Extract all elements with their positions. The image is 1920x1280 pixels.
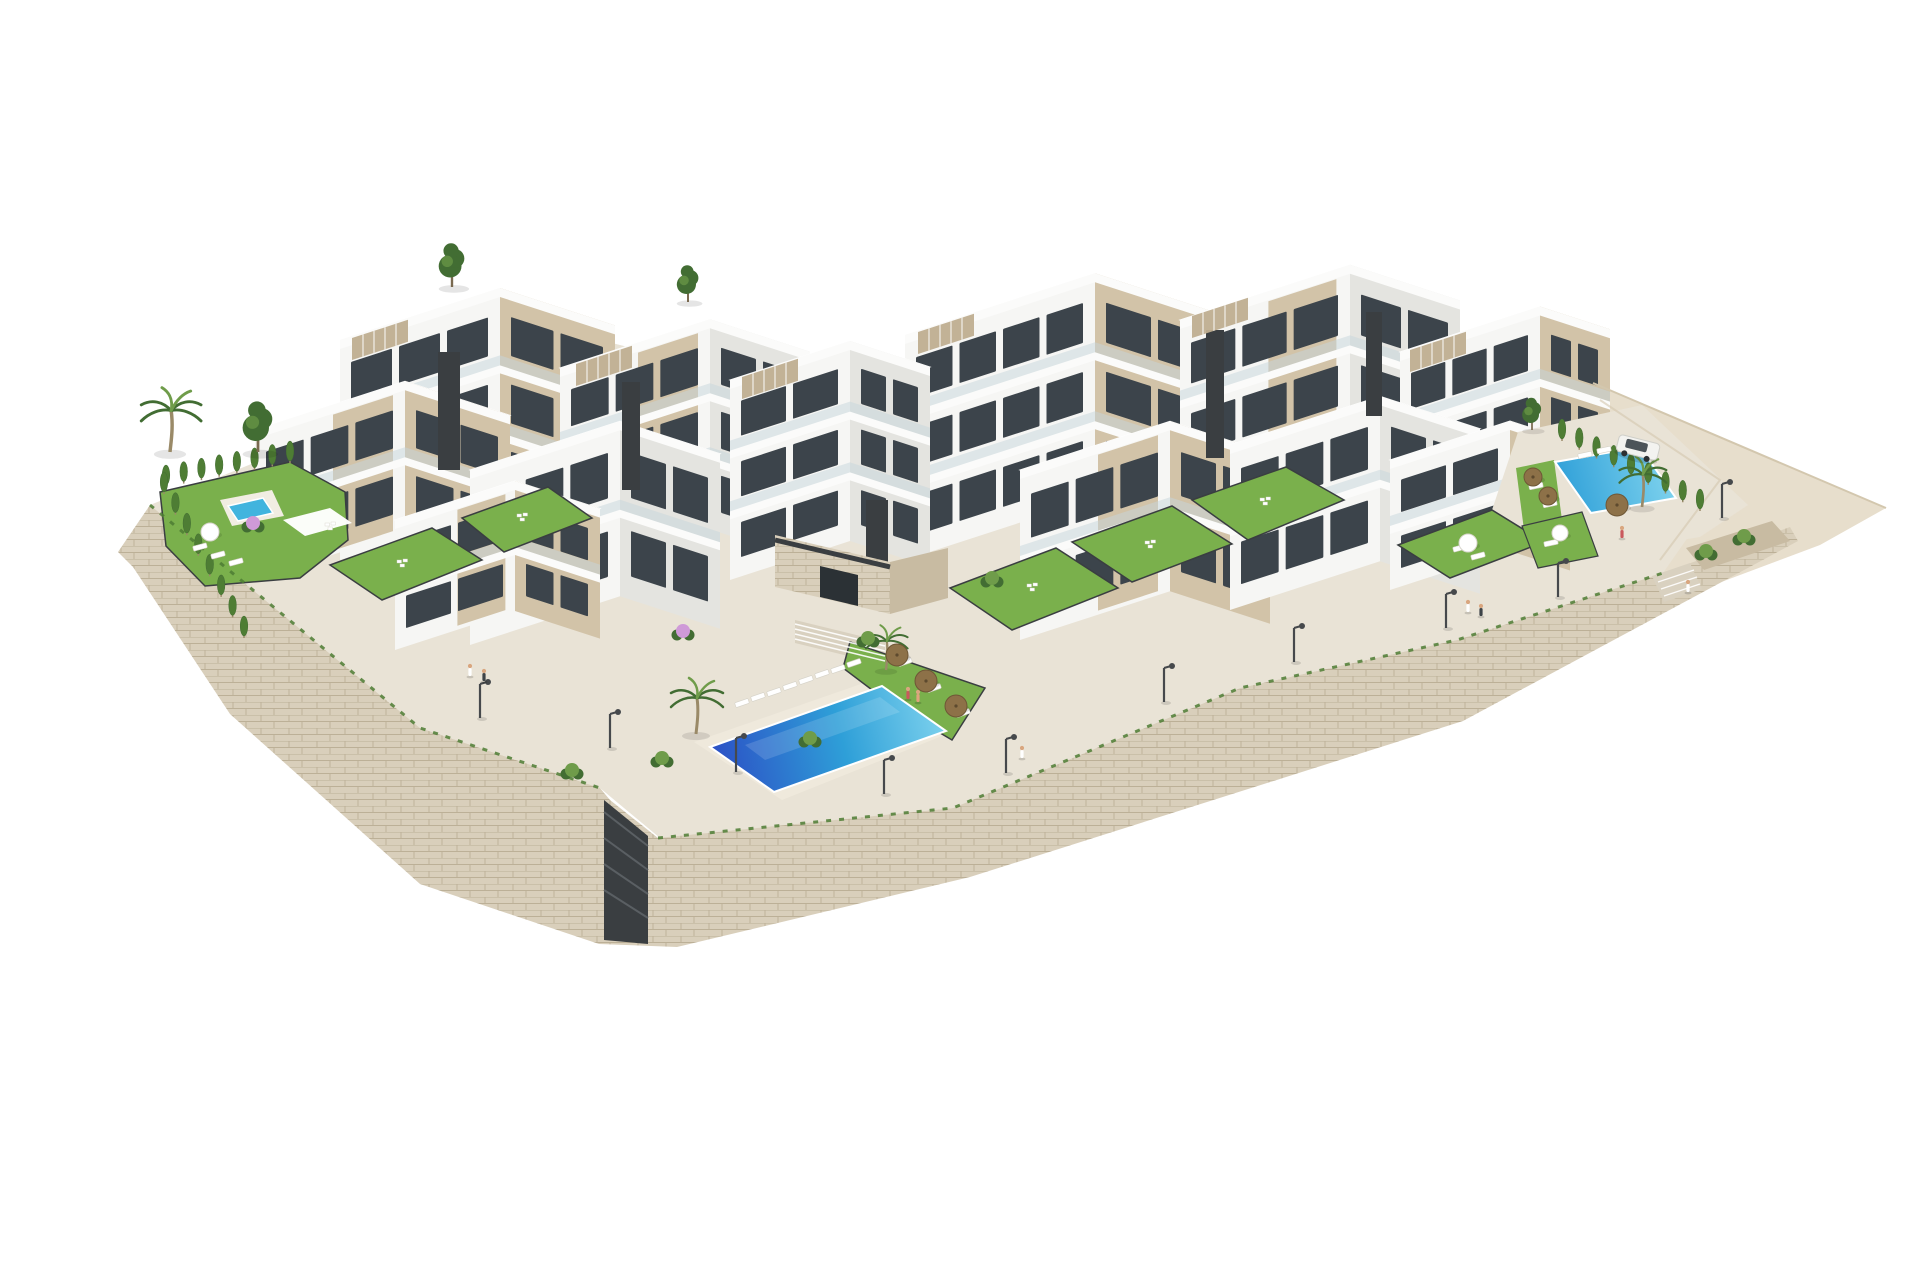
tree-shadow	[439, 285, 469, 293]
palm-trunk	[696, 698, 698, 734]
person-body	[482, 673, 485, 681]
bush-leaf	[861, 631, 875, 645]
furniture-piece	[517, 514, 522, 517]
person-shadow	[1465, 612, 1472, 615]
lamp-head	[1011, 734, 1017, 740]
person-body	[468, 668, 471, 676]
residential-complex-render	[0, 0, 1920, 1280]
person-body	[1620, 530, 1623, 538]
furniture-piece	[523, 513, 528, 516]
bush-leaf	[985, 571, 999, 585]
person-body	[1686, 584, 1689, 592]
lamp-head	[1299, 623, 1305, 629]
tree-shadow	[677, 300, 703, 306]
cypress-tree	[180, 462, 188, 482]
stair-core	[622, 382, 640, 490]
person-shadow	[1478, 616, 1485, 619]
person-head	[906, 687, 910, 691]
person-head	[1479, 604, 1483, 608]
furniture-piece	[400, 564, 405, 567]
umbrella-pole	[924, 679, 927, 682]
lamp-head	[1169, 663, 1175, 669]
lamp-head	[615, 709, 621, 715]
person-body	[906, 691, 909, 699]
cypress-tree	[172, 493, 180, 513]
stair-core	[1366, 312, 1382, 416]
furniture-piece	[328, 527, 333, 530]
lamp-head	[1451, 589, 1457, 595]
cypress-tree	[1696, 489, 1704, 509]
tree-shadow	[1522, 429, 1544, 435]
person-shadow	[915, 702, 922, 705]
person-body	[1479, 608, 1482, 616]
cypress-tree	[183, 513, 191, 533]
furniture-piece	[1266, 497, 1271, 500]
bush-leaf	[565, 763, 579, 777]
bush-leaf	[1737, 529, 1751, 543]
person-head	[916, 690, 920, 694]
lamp-head	[889, 755, 895, 761]
pine-highlight	[1524, 407, 1532, 415]
person-shadow	[1019, 758, 1026, 761]
bush-leaf	[676, 624, 690, 638]
parasol-canopy	[1459, 534, 1477, 552]
person-body	[916, 694, 919, 702]
lamp-shadow	[1719, 517, 1729, 521]
cypress-tree	[217, 575, 225, 595]
person-body	[1020, 750, 1023, 758]
window	[1551, 335, 1571, 378]
bush-leaf	[655, 751, 669, 765]
palm-trunk	[1642, 475, 1644, 507]
cypress-tree	[240, 616, 248, 636]
cypress-tree	[1558, 419, 1566, 439]
cypress-tree	[1575, 428, 1583, 448]
cypress-tree	[160, 472, 168, 492]
furniture-piece	[1151, 540, 1156, 543]
person-head	[1020, 746, 1024, 750]
furniture-piece	[1263, 502, 1268, 505]
lamp-shadow	[1443, 627, 1453, 631]
umbrella-pole	[954, 704, 957, 707]
furniture-piece	[1145, 541, 1150, 544]
stair-core	[1206, 330, 1224, 458]
furniture-piece	[1148, 545, 1153, 548]
umbrella-pole	[1615, 503, 1618, 506]
person-head	[1620, 526, 1624, 530]
person-shadow	[481, 681, 488, 684]
furniture-piece	[325, 523, 330, 526]
cypress-tree	[229, 595, 237, 615]
umbrella-pole	[1531, 475, 1534, 478]
pine-highlight	[442, 256, 453, 267]
palm-trunk	[170, 411, 172, 452]
furniture-piece	[1033, 583, 1038, 586]
furniture-piece	[397, 560, 402, 563]
bush-leaf	[803, 731, 817, 745]
stair-core	[438, 352, 460, 470]
furniture-piece	[1030, 588, 1035, 591]
cypress-tree	[233, 451, 241, 471]
parasol-canopy	[201, 523, 219, 541]
bush-leaf	[1699, 544, 1713, 558]
person-head	[1686, 580, 1690, 584]
person-head	[468, 664, 472, 668]
pine-highlight	[246, 416, 259, 429]
person-head	[482, 669, 486, 673]
building-side-face	[850, 341, 930, 567]
furniture-piece	[331, 522, 336, 525]
window	[1578, 343, 1598, 386]
furniture-piece	[1027, 584, 1032, 587]
pine-highlight	[679, 276, 689, 286]
furniture-piece	[1260, 498, 1265, 501]
lamp-shadow	[1003, 772, 1013, 776]
lamp-head	[1727, 479, 1733, 485]
cypress-tree	[1679, 480, 1687, 500]
lamp-shadow	[881, 793, 891, 797]
cypress-tree	[198, 458, 206, 478]
person-shadow	[467, 676, 474, 679]
lamp-head	[741, 733, 747, 739]
tree-shadow	[243, 450, 278, 459]
person-shadow	[1619, 538, 1626, 541]
cypress-tree	[286, 441, 294, 461]
parasol-canopy	[1552, 525, 1568, 541]
umbrella-pole	[895, 653, 898, 656]
cypress-tree	[215, 455, 223, 475]
bush-leaf	[246, 516, 260, 530]
lamp-shadow	[1291, 661, 1301, 665]
umbrella-pole	[1546, 494, 1549, 497]
furniture-piece	[520, 518, 525, 521]
lamp-shadow	[607, 747, 617, 751]
stair-core	[866, 500, 888, 566]
architectural-rendering	[0, 0, 1920, 1280]
person-head	[1466, 600, 1470, 604]
person-body	[1466, 604, 1469, 612]
person-shadow	[1685, 592, 1692, 595]
furniture-piece	[403, 559, 408, 562]
person-shadow	[905, 699, 912, 702]
lamp-shadow	[477, 717, 487, 721]
lamp-shadow	[733, 771, 743, 775]
lamp-shadow	[1555, 596, 1565, 600]
lamp-shadow	[1161, 701, 1171, 705]
lamp-head	[1563, 558, 1569, 564]
